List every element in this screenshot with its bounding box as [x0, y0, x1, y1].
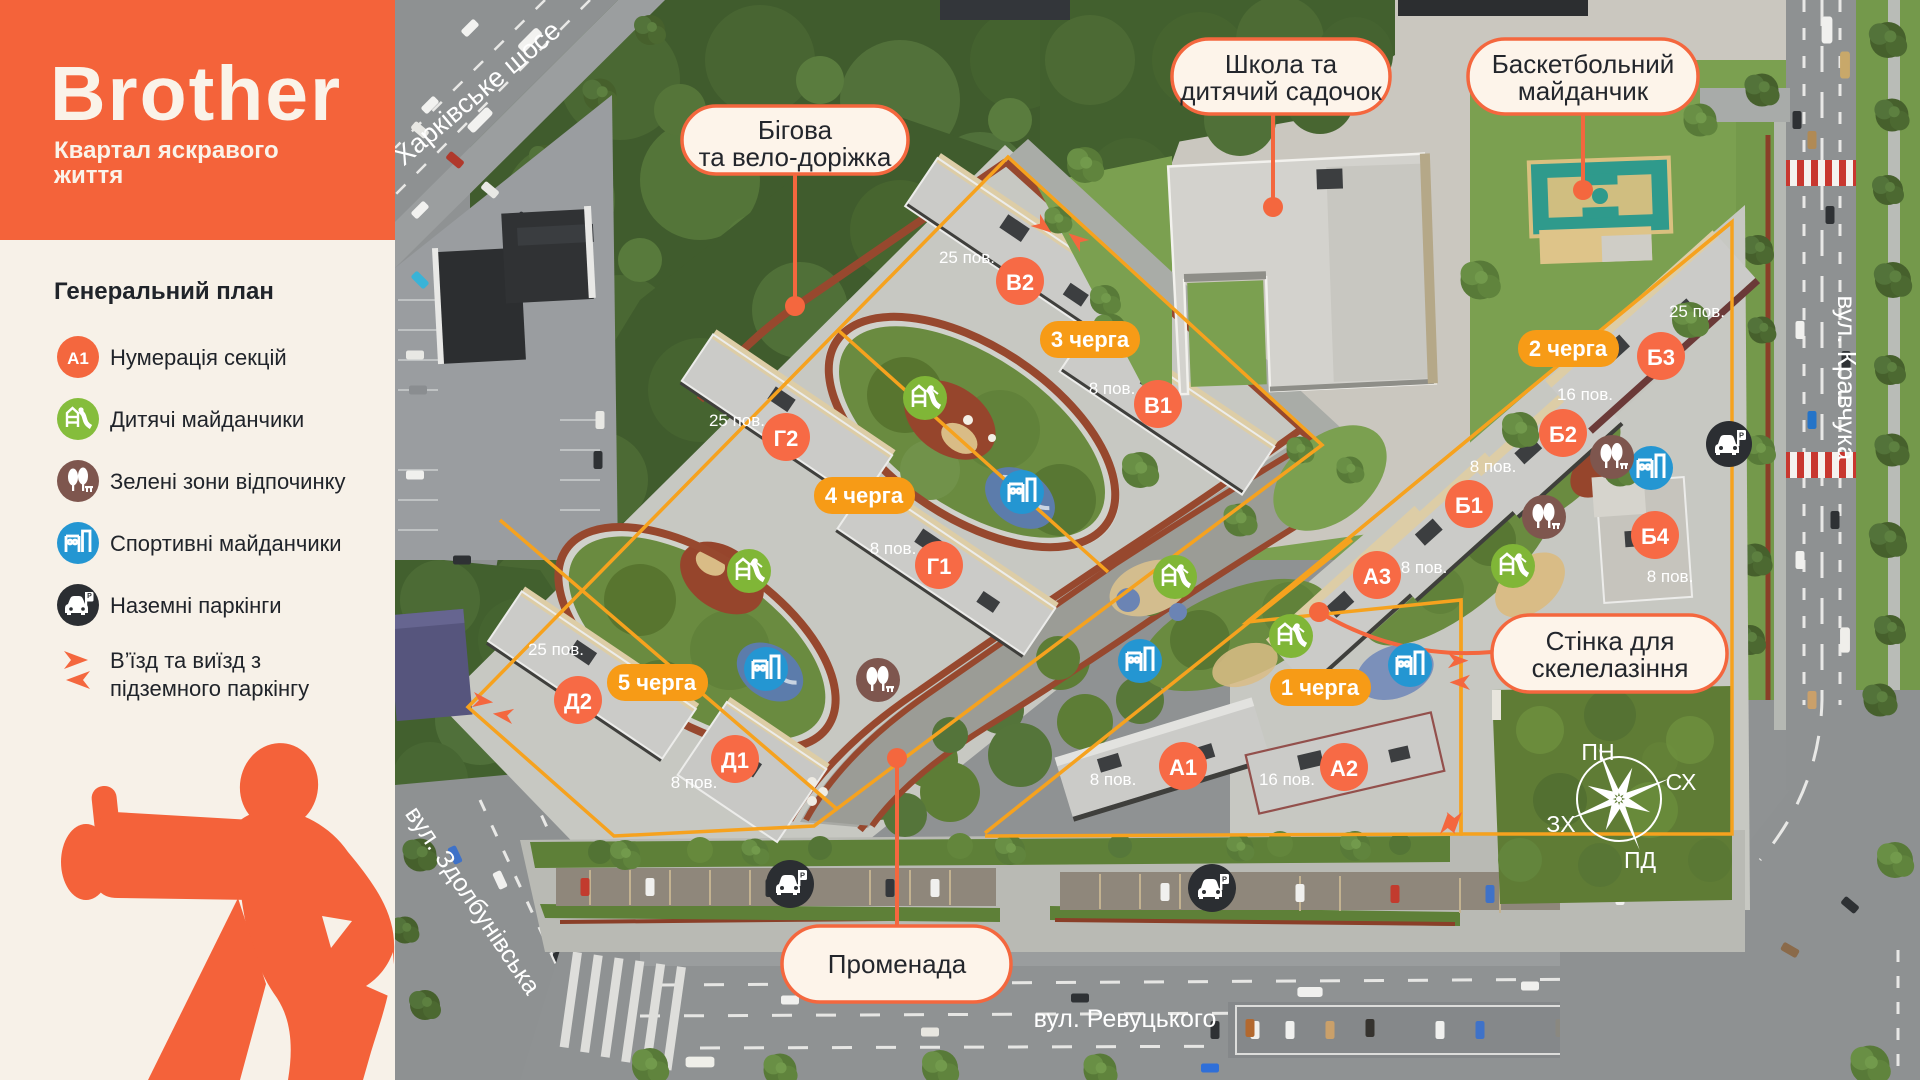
svg-text:25 пов.: 25 пов.	[939, 248, 995, 267]
svg-text:4 черга: 4 черга	[825, 483, 904, 508]
svg-text:25 пов.: 25 пов.	[1669, 302, 1725, 321]
svg-text:Б2: Б2	[1549, 422, 1577, 447]
svg-text:Бігова: Бігова	[758, 115, 833, 145]
svg-text:25 пов.: 25 пов.	[528, 640, 584, 659]
svg-text:8 пов.: 8 пов.	[1470, 457, 1517, 476]
svg-text:Стінка для: Стінка для	[1546, 626, 1675, 656]
svg-text:ПД: ПД	[1624, 847, 1657, 873]
svg-text:25 пов.: 25 пов.	[709, 411, 765, 430]
svg-text:P: P	[800, 871, 805, 880]
svg-text:Нумерація секцій: Нумерація секцій	[110, 345, 287, 370]
svg-text:підземного паркінгу: підземного паркінгу	[110, 676, 309, 701]
svg-text:Променада: Променада	[828, 949, 967, 979]
svg-text:Д2: Д2	[564, 689, 592, 714]
svg-text:Школа та: Школа та	[1225, 49, 1338, 79]
svg-text:та вело-доріжка: та вело-доріжка	[699, 142, 892, 172]
svg-text:В2: В2	[1006, 270, 1034, 295]
svg-text:8 пов.: 8 пов.	[671, 773, 718, 792]
svg-text:Наземні паркінги: Наземні паркінги	[110, 593, 282, 618]
svg-text:8 пов.: 8 пов.	[1090, 770, 1137, 789]
svg-text:А2: А2	[1330, 756, 1358, 781]
svg-text:життя: життя	[53, 162, 123, 189]
svg-text:Квартал яскравого: Квартал яскравого	[54, 137, 279, 164]
svg-text:скелелазіння: скелелазіння	[1532, 653, 1689, 683]
svg-text:16 пов.: 16 пов.	[1259, 770, 1315, 789]
svg-text:В1: В1	[1144, 393, 1172, 418]
svg-text:Б1: Б1	[1455, 493, 1483, 518]
svg-text:8 пов.: 8 пов.	[870, 539, 917, 558]
svg-text:ЗХ: ЗХ	[1546, 811, 1575, 837]
svg-text:A1: A1	[67, 349, 89, 368]
svg-text:3 черга: 3 черга	[1051, 327, 1130, 352]
svg-text:Г1: Г1	[927, 554, 952, 579]
svg-text:8 пов.: 8 пов.	[1089, 379, 1136, 398]
svg-text:Д1: Д1	[721, 748, 749, 773]
svg-text:8 пов.: 8 пов.	[1647, 567, 1694, 586]
svg-text:Спортивні майданчики: Спортивні майданчики	[110, 531, 342, 556]
svg-text:1 черга: 1 черга	[1281, 675, 1360, 700]
svg-text:2 черга: 2 черга	[1529, 336, 1608, 361]
svg-text:P: P	[1739, 431, 1744, 440]
svg-text:8 пов.: 8 пов.	[1401, 558, 1448, 577]
svg-text:P: P	[87, 593, 92, 600]
svg-text:Генеральний план: Генеральний план	[54, 278, 274, 305]
svg-text:майданчик: майданчик	[1518, 76, 1649, 106]
svg-text:В’їзд та виїзд з: В’їзд та виїзд з	[110, 648, 261, 673]
svg-text:P: P	[1222, 875, 1227, 884]
svg-text:5 черга: 5 черга	[618, 670, 697, 695]
svg-text:Г2: Г2	[774, 426, 799, 451]
svg-text:вул. Кравчука: вул. Кравчука	[1832, 296, 1862, 461]
svg-text:вул. Ревуцького: вул. Ревуцького	[1034, 1005, 1217, 1033]
svg-text:ПН: ПН	[1581, 739, 1614, 765]
svg-text:Баскетбольний: Баскетбольний	[1492, 49, 1675, 79]
svg-text:А1: А1	[1169, 755, 1197, 780]
svg-text:Б3: Б3	[1647, 345, 1675, 370]
svg-text:Brother: Brother	[50, 51, 342, 137]
svg-text:Б4: Б4	[1641, 524, 1670, 549]
svg-text:Дитячі майданчики: Дитячі майданчики	[110, 407, 304, 432]
svg-text:СХ: СХ	[1666, 769, 1697, 795]
svg-text:А3: А3	[1363, 564, 1391, 589]
svg-text:дитячий садочок: дитячий садочок	[1180, 76, 1382, 106]
svg-text:Зелені зони відпочинку: Зелені зони відпочинку	[110, 469, 346, 494]
svg-text:16 пов.: 16 пов.	[1557, 385, 1613, 404]
